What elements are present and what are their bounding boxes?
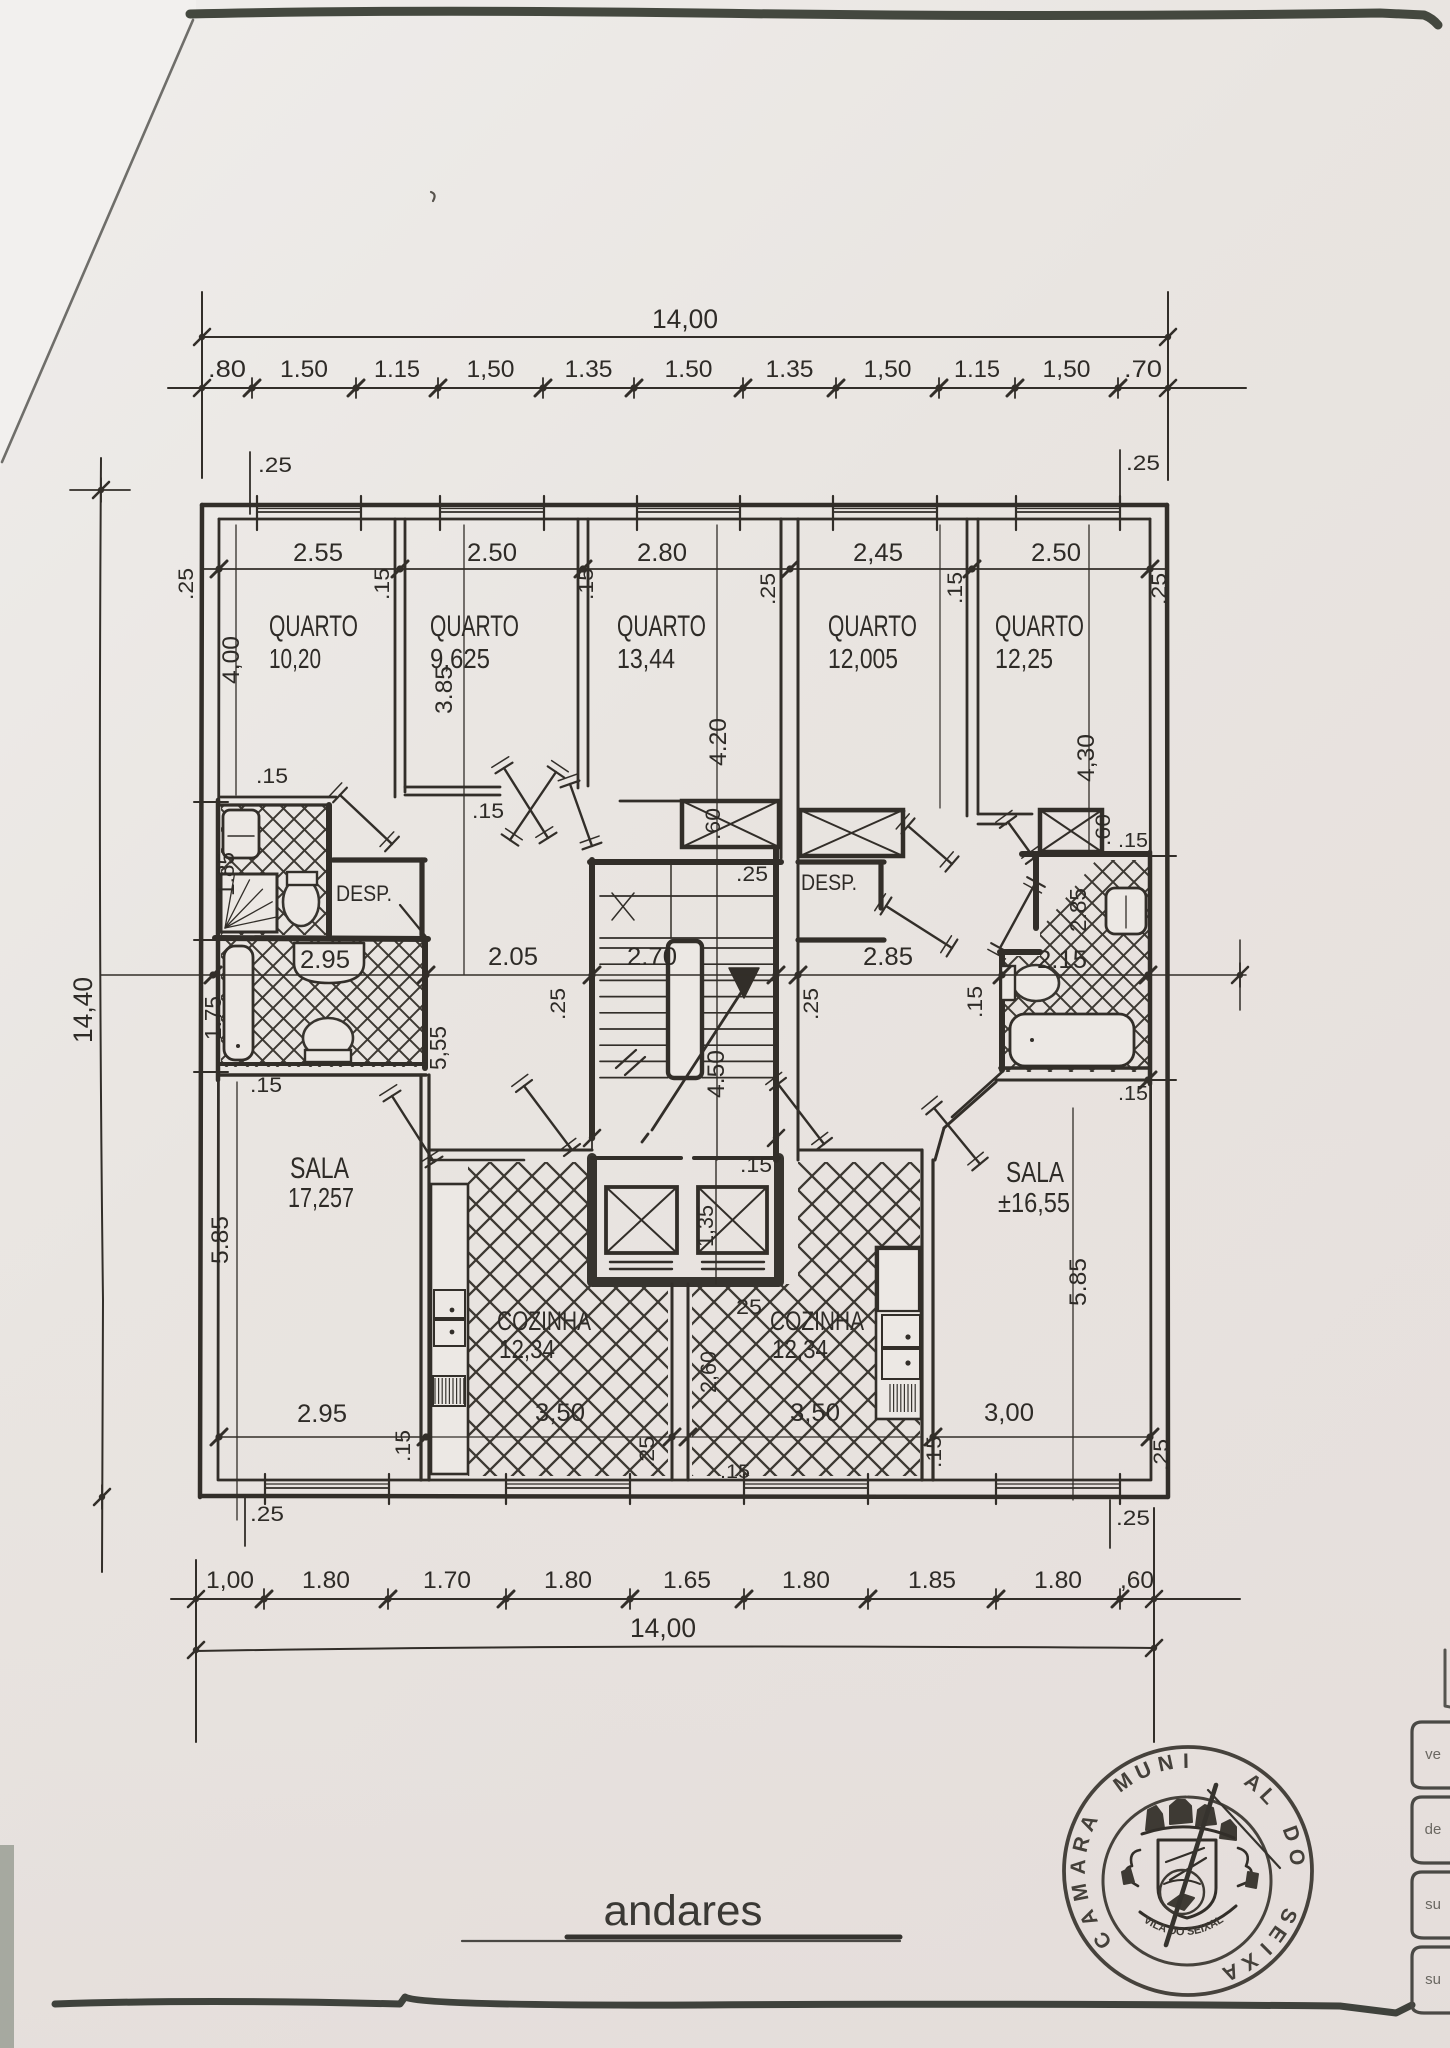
svg-text:.15: .15 [944, 572, 967, 604]
svg-text:1,50: 1,50 [864, 356, 912, 383]
svg-text:.25: .25 [1126, 452, 1160, 475]
svg-text:2.15: 2.15 [1037, 946, 1087, 974]
svg-text:.25: .25 [757, 573, 780, 605]
svg-text:QUARTO: QUARTO [828, 610, 917, 643]
svg-text:QUARTO: QUARTO [995, 610, 1084, 643]
svg-text:.15: .15 [472, 800, 504, 823]
svg-text:3,50: 3,50 [535, 1399, 585, 1427]
svg-text:1.85: 1.85 [213, 852, 239, 896]
svg-text:de: de [1425, 1821, 1442, 1838]
svg-text:3,00: 3,00 [984, 1399, 1034, 1427]
svg-text:2.85: 2.85 [863, 943, 913, 971]
svg-text:su: su [1425, 1971, 1441, 1988]
svg-text:.15: .15 [250, 1074, 282, 1097]
svg-text:.15: .15 [720, 1462, 750, 1483]
svg-text:4.20: 4.20 [705, 718, 732, 766]
svg-text:.25: .25 [250, 1503, 284, 1526]
svg-text:1.80: 1.80 [544, 1567, 592, 1594]
svg-text:2.95: 2.95 [297, 1400, 347, 1428]
svg-text:4,30: 4,30 [1073, 734, 1100, 782]
svg-text:17,257: 17,257 [288, 1182, 354, 1213]
svg-text:1,50: 1,50 [1043, 356, 1091, 383]
svg-text:1.80: 1.80 [782, 1567, 830, 1594]
svg-text:QUARTO: QUARTO [430, 610, 519, 643]
svg-text:2.80: 2.80 [637, 539, 687, 567]
svg-text:O: O [1284, 1848, 1309, 1867]
svg-text:3.85: 3.85 [431, 666, 458, 714]
svg-text:.25: .25 [175, 568, 198, 600]
svg-text:2,60: 2,60 [696, 1351, 721, 1393]
svg-text:andares: andares [604, 1887, 763, 1935]
svg-text:4.50: 4.50 [703, 1050, 730, 1098]
svg-text:2.05: 2.05 [488, 943, 538, 971]
svg-text:SALA: SALA [290, 1152, 349, 1185]
svg-text:A: A [1067, 1859, 1091, 1875]
svg-text:SALA: SALA [1006, 1157, 1065, 1189]
svg-text:.25: .25 [1116, 1507, 1150, 1530]
svg-text:1,35: 1,35 [693, 1205, 718, 1247]
svg-text:1.75: 1.75 [200, 996, 226, 1040]
svg-text:.15: .15 [1118, 830, 1148, 852]
svg-text:.15: .15 [392, 1430, 415, 1462]
svg-text:1.50: 1.50 [280, 356, 328, 383]
svg-text:.60: .60 [1092, 814, 1115, 846]
svg-text:2,45: 2,45 [853, 539, 903, 567]
svg-text:1.65: 1.65 [663, 1567, 711, 1594]
svg-text:1.35: 1.35 [565, 356, 613, 383]
svg-text:3,50: 3,50 [790, 1399, 840, 1427]
svg-text:.60: .60 [702, 808, 725, 840]
svg-text:.25: .25 [1148, 573, 1171, 605]
svg-text:DESP.: DESP. [336, 881, 392, 906]
svg-text:5.85: 5.85 [207, 1216, 234, 1264]
svg-text:1,50: 1,50 [467, 356, 515, 383]
svg-text:.25: .25 [1150, 1439, 1173, 1471]
svg-text:14,00: 14,00 [630, 1613, 696, 1643]
svg-text:10,20: 10,20 [269, 643, 321, 674]
svg-text:1.15: 1.15 [374, 356, 420, 383]
svg-text:QUARTO: QUARTO [269, 610, 358, 643]
svg-text:,60: ,60 [1120, 1567, 1154, 1594]
svg-text:12,25: 12,25 [995, 643, 1053, 674]
svg-text:1,00: 1,00 [206, 1567, 254, 1594]
svg-text:1.80: 1.80 [302, 1567, 350, 1594]
svg-text:COZINHA: COZINHA [497, 1306, 591, 1336]
svg-text:.80: .80 [208, 356, 246, 383]
svg-text:2.50: 2.50 [1031, 539, 1081, 567]
svg-text:.15: .15 [740, 1154, 772, 1177]
svg-text:.15: .15 [923, 1436, 946, 1468]
svg-text:1.85: 1.85 [908, 1567, 956, 1594]
svg-text:1.80: 1.80 [1034, 1567, 1082, 1594]
svg-text:.15: .15 [1118, 1083, 1148, 1105]
svg-text:2.70: 2.70 [627, 943, 677, 971]
svg-text:.25: .25 [636, 1436, 659, 1468]
svg-text:5.85: 5.85 [1065, 1258, 1092, 1306]
svg-text:2.85: 2.85 [1065, 888, 1091, 932]
svg-text:5,55: 5,55 [425, 1026, 451, 1070]
svg-text:.25: .25 [800, 988, 823, 1020]
svg-text:.25: .25 [736, 863, 768, 886]
svg-text:2.95: 2.95 [300, 946, 350, 974]
svg-text:1.35: 1.35 [766, 356, 814, 383]
svg-text:.25: .25 [258, 454, 292, 477]
svg-text:12,34: 12,34 [772, 1334, 828, 1364]
svg-text:12,34: 12,34 [499, 1334, 555, 1364]
svg-text:QUARTO: QUARTO [617, 610, 706, 643]
svg-text:.25: .25 [547, 988, 570, 1020]
svg-text:.15: .15 [256, 765, 288, 788]
svg-text:±16,55: ±16,55 [998, 1187, 1070, 1218]
svg-text:1.70: 1.70 [423, 1567, 471, 1594]
svg-text:14,40: 14,40 [68, 977, 98, 1043]
svg-text:.70: .70 [1124, 356, 1162, 383]
svg-text:12,005: 12,005 [828, 643, 898, 674]
svg-text:25: 25 [736, 1296, 762, 1319]
svg-text:4,00: 4,00 [218, 636, 245, 684]
svg-text:13,44: 13,44 [617, 643, 675, 674]
svg-text:1.50: 1.50 [665, 356, 713, 383]
svg-text:1.15: 1.15 [954, 356, 1000, 383]
svg-text:.15: .15 [371, 568, 394, 600]
svg-text:COZINHA: COZINHA [770, 1306, 864, 1336]
svg-text:2.50: 2.50 [467, 539, 517, 567]
svg-text:2.55: 2.55 [293, 539, 343, 567]
svg-text:DESP.: DESP. [801, 870, 857, 895]
svg-text:.15: .15 [964, 986, 987, 1018]
svg-text:I: I [1183, 1750, 1189, 1773]
svg-text:su: su [1425, 1896, 1441, 1913]
svg-text:14,00: 14,00 [652, 304, 718, 334]
svg-text:ve: ve [1425, 1746, 1441, 1763]
